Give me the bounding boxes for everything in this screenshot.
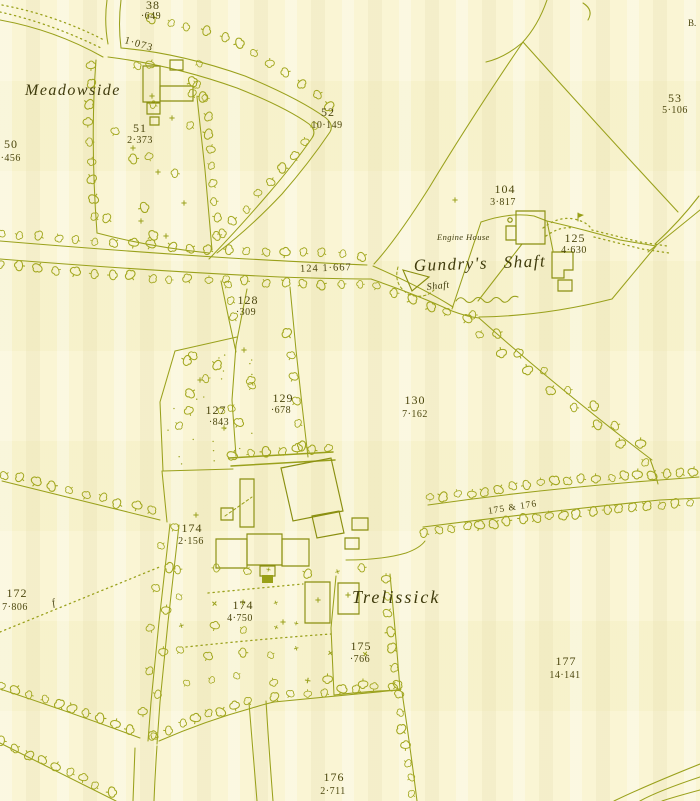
tree-icon: [591, 473, 601, 483]
tree-icon: [404, 292, 418, 306]
tree-icon: [201, 109, 214, 122]
tree-icon: [358, 563, 367, 572]
building-outbuilding: [352, 518, 368, 530]
tree-icon: [181, 678, 191, 688]
tree-icon: [205, 143, 217, 155]
tree-icon: [239, 275, 251, 287]
tree-icon: [212, 230, 223, 241]
tree-icon: [88, 268, 99, 279]
footpath-dotted: [2, 5, 104, 40]
tree-icon: [467, 489, 477, 499]
tree-icon: [358, 678, 368, 688]
tree-icon: [199, 24, 212, 37]
shrub-icon: [273, 600, 278, 605]
field-boundary: [374, 42, 523, 264]
road-line: [133, 748, 135, 801]
label-shaft: Shaft: [426, 280, 450, 293]
pasture-dot: [203, 396, 204, 397]
field-boundary: [523, 42, 678, 212]
flag-icon: [578, 213, 584, 218]
tree-icon: [418, 527, 430, 539]
field-boundary: [162, 471, 167, 522]
tree-icon: [233, 37, 245, 49]
tree-icon: [189, 713, 201, 725]
tree-icon: [606, 473, 617, 484]
tree-icon: [206, 675, 216, 685]
tree-icon: [225, 448, 239, 463]
tree-icon: [110, 497, 124, 511]
yard-dashed: [225, 497, 252, 516]
road-line: [249, 703, 257, 801]
tree-icon: [300, 567, 313, 580]
tree-icon: [170, 168, 180, 178]
shrub-icon: [293, 646, 299, 652]
tree-icon: [446, 523, 457, 534]
tree-icon: [210, 197, 219, 205]
tree-icon: [232, 671, 242, 681]
tree-icon: [316, 246, 328, 258]
tree-icon: [293, 418, 305, 429]
tree-icon: [260, 277, 272, 289]
tree-icon: [13, 471, 27, 485]
tree-icon: [632, 468, 643, 480]
parcel-53-number: 53: [668, 91, 682, 105]
tree-icon: [181, 23, 190, 31]
tree-icon: [123, 268, 138, 283]
tree-icon: [304, 689, 312, 697]
parcel-130-acreage: 7·162: [402, 409, 428, 420]
tree-icon: [183, 386, 197, 400]
field-boundary: [221, 281, 236, 352]
boundary-f-mark: f: [51, 597, 58, 609]
tree-icon: [185, 75, 199, 89]
tree-icon: [207, 178, 219, 190]
tree-icon: [217, 228, 227, 238]
tree-icon: [106, 787, 117, 798]
tree-icon: [280, 67, 291, 78]
pasture-dot: [218, 357, 219, 358]
tree-icon: [165, 276, 174, 284]
road-line: [121, 48, 331, 253]
parcel-52-acreage: 10·149: [311, 120, 342, 131]
buildings: [143, 60, 573, 623]
tree-icon: [539, 366, 550, 377]
tree-icon: [219, 31, 231, 42]
tree-icon: [186, 350, 199, 363]
parcel-174b-number: 174: [233, 598, 254, 612]
building-trelissick: [260, 566, 275, 576]
tree-icon: [156, 540, 167, 551]
parcel-53-acreage: 5·106: [662, 105, 688, 116]
road-line: [655, 196, 699, 244]
parcel-130-number: 130: [405, 393, 426, 407]
shrub-icon: [335, 569, 341, 575]
parcel-176-acreage: 2·711: [320, 786, 345, 797]
tree-icon: [209, 620, 221, 632]
building-trelissick-house: [282, 539, 309, 566]
tree-icon: [561, 474, 574, 487]
tramway-dotted: [543, 218, 667, 246]
tree-icon: [47, 481, 58, 492]
hedgerow-line: [0, 689, 140, 738]
tree-icon: [298, 246, 310, 258]
tree-icon: [87, 156, 97, 166]
tree-icon: [610, 420, 622, 431]
tree-icon: [28, 474, 43, 489]
tree-icon: [300, 137, 309, 146]
tree-icon: [269, 677, 279, 687]
shrub-icon: [280, 619, 285, 624]
parcel-174b-acreage: 4·750: [227, 613, 253, 624]
shrub-icon: [273, 624, 279, 630]
building-meadowside: [150, 117, 159, 125]
tree-icon: [544, 383, 558, 397]
pasture-dot: [212, 441, 213, 442]
corner-note: B.: [688, 18, 696, 28]
tree-icon: [109, 126, 121, 138]
shrub-icon: [155, 169, 160, 174]
tree-icon: [149, 582, 161, 594]
shrub-icon: [304, 677, 311, 684]
parcel-labels: 38 ·649 50 2·456 51 2·373 52 10·149 53 5…: [0, 0, 688, 797]
shrub-icon: [241, 347, 246, 352]
tree-icon: [435, 489, 450, 504]
tree-icon: [426, 493, 434, 502]
tree-icon: [384, 626, 396, 638]
shrub-icon: [327, 649, 334, 656]
pasture-dot: [225, 428, 226, 429]
tree-icon: [87, 191, 102, 206]
tree-icon: [453, 488, 463, 498]
tree-icon: [0, 469, 11, 481]
tree-icon: [145, 504, 158, 517]
tree-icon: [687, 465, 699, 478]
building-outbuilding: [262, 575, 273, 583]
scrub-line: [456, 296, 518, 302]
parcel-174a-acreage: 2·156: [178, 536, 204, 547]
tree-icon: [249, 47, 260, 58]
tree-icon: [287, 371, 300, 384]
tree-icon: [163, 726, 173, 736]
tree-icon: [86, 61, 96, 71]
tree-icon: [279, 246, 291, 259]
field-boundary: [346, 541, 425, 560]
shrub-icon: [138, 218, 143, 223]
tree-icon: [53, 698, 67, 712]
tree-icon: [201, 650, 214, 663]
tree-rows: [0, 12, 699, 799]
field-boundary: [160, 351, 175, 471]
tree-icon: [537, 477, 545, 485]
pasture-dot: [251, 359, 252, 360]
tree-icon: [33, 229, 46, 242]
tree-icon: [423, 300, 437, 314]
tree-icon: [507, 479, 520, 492]
tree-icon: [266, 650, 276, 660]
parcel-50-number: 50: [4, 137, 18, 151]
tree-icon: [130, 499, 143, 512]
shrub-icon: [169, 115, 174, 120]
shrub-icon: [211, 600, 219, 608]
shrub-icon: [266, 567, 271, 572]
parcel-172-acreage: 7·806: [2, 602, 28, 613]
shrub-icon: [149, 93, 154, 98]
parcel-172-number: 172: [7, 586, 28, 600]
map-canvas: 38 ·649 50 2·456 51 2·373 52 10·149 53 5…: [0, 0, 700, 801]
parcel-175-number: 175: [351, 639, 372, 653]
tree-icon: [602, 505, 612, 514]
tree-icon: [337, 248, 347, 258]
parcel-127-acreage: ·843: [209, 417, 229, 428]
parcel-176-number: 176: [324, 770, 345, 784]
tree-icon: [242, 565, 253, 576]
road-line: [159, 702, 274, 741]
tree-icon: [14, 260, 26, 271]
tree-icon: [89, 211, 101, 223]
tree-icon: [96, 491, 109, 504]
tree-icon: [432, 524, 444, 536]
parcel-175-acreage: ·766: [350, 654, 370, 665]
parcel-177-number: 177: [556, 654, 577, 668]
parcel-104-acreage: 3·817: [490, 197, 516, 208]
tree-icon: [177, 718, 187, 728]
pasture-dot: [223, 370, 224, 371]
tree-icon: [89, 780, 101, 792]
place-name-gundrys-shaft: Gundry's Shaft: [413, 251, 546, 275]
tree-icon: [183, 405, 195, 417]
shrub-icon: [178, 623, 184, 629]
parcel-51-acreage: 2·373: [127, 135, 153, 146]
tree-icon: [143, 664, 155, 676]
building-trelissick: [312, 511, 344, 538]
parcel-127-number: 127: [206, 403, 227, 417]
tree-icon: [259, 246, 271, 258]
tree-icon: [243, 205, 252, 214]
tree-icon: [229, 700, 241, 712]
tree-icon: [174, 645, 185, 656]
pasture-dot: [213, 460, 214, 461]
tree-icon: [83, 117, 93, 127]
tree-icon: [240, 245, 252, 257]
tree-icon: [221, 274, 232, 285]
pasture-dot: [213, 450, 214, 451]
tree-icon: [312, 88, 324, 100]
road-line: [640, 777, 700, 801]
tree-icon: [226, 295, 238, 306]
parcel-128-acreage: ·309: [236, 307, 256, 318]
road-line: [614, 764, 700, 801]
enclosure-line: [479, 299, 612, 317]
shrub-icon: [294, 621, 299, 626]
pasture-dot: [178, 456, 179, 457]
tree-icon: [145, 623, 156, 634]
tree-icon: [357, 280, 365, 288]
tree-icon: [226, 214, 240, 227]
tree-icon: [184, 242, 197, 255]
tree-icon: [36, 753, 50, 766]
place-name-meadowside: Meadowside: [24, 82, 121, 99]
tree-icon: [138, 707, 147, 717]
parcel-125-number: 125: [565, 231, 586, 245]
tree-icon: [127, 237, 139, 249]
tree-icon: [285, 350, 297, 362]
tree-icon: [475, 329, 486, 340]
tree-icon: [660, 468, 671, 479]
parcel-129-acreage: ·678: [271, 405, 291, 416]
parcel-125-acreage: 4·630: [561, 245, 587, 256]
shrub-icon: [130, 145, 135, 150]
tree-icon: [24, 690, 34, 700]
os-map-sheet: 38 ·649 50 2·456 51 2·373 52 10·149 53 5…: [0, 0, 700, 801]
tree-icon: [187, 88, 199, 100]
tree-icon: [165, 239, 180, 254]
pasture-dot: [239, 448, 240, 449]
tree-icon: [13, 230, 24, 241]
road-network: [0, 0, 700, 801]
place-names: Meadowside Trelissick Gundry's Shaft Sha…: [24, 18, 696, 609]
hedgerow-line: [2, 481, 160, 520]
shrub-icon: [345, 592, 350, 597]
building-trelissick-house: [247, 534, 282, 565]
tree-icon: [202, 707, 214, 719]
plot-dotted: [186, 634, 331, 647]
tree-icon: [202, 374, 211, 383]
field-boundary: [163, 469, 233, 471]
tree-icon: [492, 482, 506, 496]
pasture-dot: [181, 463, 182, 464]
tree-icon: [656, 500, 667, 511]
tree-icon: [64, 484, 75, 495]
building-trelissick: [345, 538, 359, 549]
tree-icon: [205, 275, 213, 284]
road-line: [662, 790, 700, 801]
shrub-icon: [452, 197, 457, 202]
chimney-icon: [508, 218, 512, 222]
tree-icon: [381, 573, 391, 583]
tree-icon: [385, 641, 400, 656]
pasture-dot: [196, 399, 197, 400]
pasture-dot: [249, 363, 250, 364]
tree-icon: [369, 682, 378, 692]
tree-icon: [495, 346, 507, 358]
lane-line: [157, 525, 179, 744]
parcel-51-number: 51: [133, 121, 147, 135]
building-trelissick-house: [216, 539, 247, 568]
pasture-dot: [167, 429, 168, 430]
tree-icon: [617, 469, 631, 483]
tree-icon: [201, 127, 215, 141]
pasture-dot: [224, 354, 225, 355]
tree-icon: [356, 250, 369, 263]
shrub-icon: [315, 597, 320, 602]
tree-icon: [390, 288, 400, 298]
tree-icon: [158, 646, 168, 656]
tree-icon: [165, 17, 176, 28]
tree-icon: [222, 244, 234, 255]
road-line: [106, 0, 108, 44]
road-line: [120, 0, 122, 48]
tree-icon: [238, 624, 248, 634]
road-label-1073: 1·073: [123, 35, 154, 54]
tree-icon: [381, 606, 394, 619]
tree-icon: [520, 480, 531, 491]
tree-icon: [323, 673, 333, 683]
parcel-177-acreage: 14·141: [549, 670, 580, 681]
tree-icon: [185, 120, 197, 132]
tree-icon: [54, 232, 65, 243]
road-line: [0, 241, 367, 265]
tree-icon: [315, 279, 328, 292]
tree-icon: [211, 212, 222, 223]
tree-icon: [148, 100, 158, 110]
tree-icon: [214, 704, 229, 719]
tree-icon: [521, 363, 534, 376]
place-name-trelissick: Trelissick: [352, 587, 440, 607]
tree-icon: [206, 160, 217, 171]
pasture-dot: [221, 378, 222, 379]
parcel-52-number: 52: [321, 105, 335, 119]
tree-icon: [137, 201, 150, 213]
parcel-104-number: 104: [495, 182, 516, 196]
enclosure-line: [547, 221, 553, 251]
road-label-124: 124 1·667: [300, 262, 352, 275]
shrub-icon: [193, 512, 198, 517]
field-boundary: [290, 287, 308, 457]
tree-icon: [246, 381, 257, 392]
hedgerow-line: [479, 318, 652, 460]
tree-icon: [238, 648, 248, 658]
field-boundary: [274, 690, 398, 702]
tree-icon: [547, 474, 562, 489]
road-line: [0, 20, 103, 57]
tree-icon: [280, 326, 295, 341]
tree-icon: [89, 237, 99, 247]
pasture-dot: [193, 439, 194, 440]
tree-icon: [80, 489, 92, 501]
tree-icon: [209, 357, 224, 372]
pasture-dot: [251, 374, 252, 375]
tree-icon: [576, 473, 588, 484]
road-line: [583, 3, 590, 20]
plot-dotted: [208, 584, 303, 593]
tree-icon: [107, 270, 117, 280]
building-trelissick: [240, 479, 254, 527]
tree-icon: [51, 265, 62, 276]
parcel-128-number: 128: [238, 293, 259, 307]
parcel-129-number: 129: [273, 391, 294, 405]
tree-icon: [84, 172, 98, 186]
tree-icon: [175, 592, 184, 601]
tree-icon: [635, 437, 646, 448]
tree-icon: [144, 152, 154, 162]
tree-icon: [254, 189, 263, 198]
parcel-174a-number: 174: [182, 521, 203, 535]
tree-icon: [0, 228, 7, 240]
road-line: [154, 746, 157, 801]
tree-icon: [242, 696, 254, 708]
tree-icon: [128, 154, 139, 165]
tree-icon: [181, 272, 194, 285]
tree-icon: [173, 419, 185, 431]
shrub-icon: [181, 200, 186, 205]
tree-icon: [570, 403, 580, 413]
tree-icon: [337, 280, 346, 289]
tree-icon: [265, 58, 274, 68]
parcel-38-acreage: ·649: [141, 11, 161, 22]
tree-icon: [294, 77, 308, 91]
tree-icon: [473, 519, 486, 533]
tree-icon: [81, 708, 91, 718]
